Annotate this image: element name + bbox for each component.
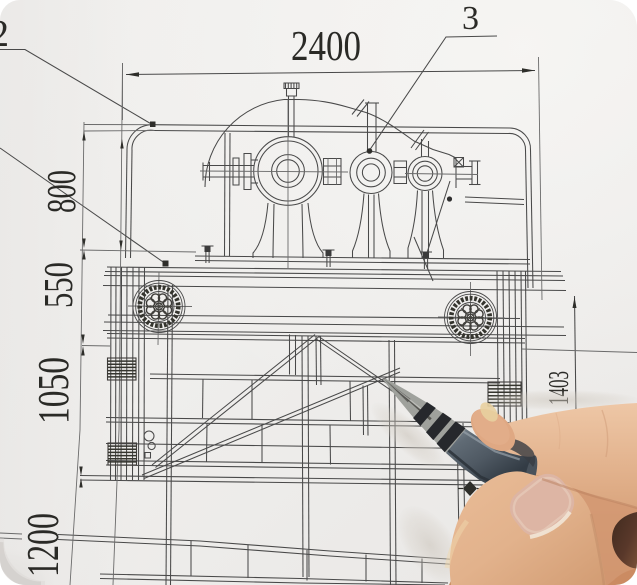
svg-text:550: 550 bbox=[35, 262, 81, 308]
svg-text:800: 800 bbox=[38, 170, 84, 213]
svg-text:3: 3 bbox=[462, 0, 479, 37]
svg-text:2: 2 bbox=[0, 13, 9, 55]
svg-text:1050: 1050 bbox=[29, 357, 78, 424]
svg-text:1200: 1200 bbox=[17, 513, 68, 577]
svg-text:2400: 2400 bbox=[291, 24, 361, 70]
